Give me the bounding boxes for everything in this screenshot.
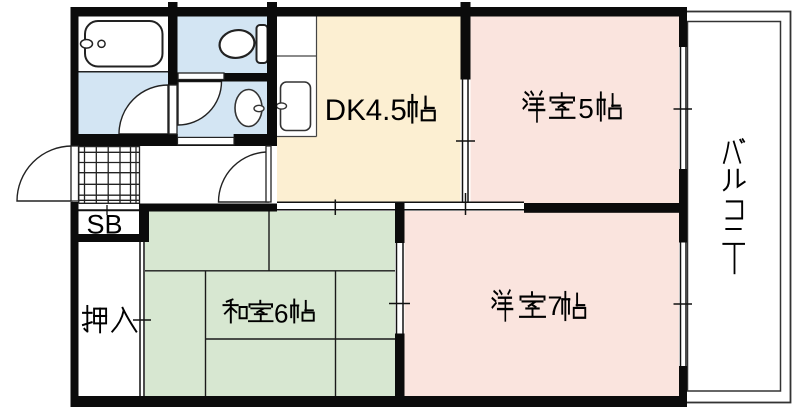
- svg-text:DK4.5: DK4.5: [325, 94, 407, 127]
- svg-text:5: 5: [578, 93, 594, 124]
- svg-text:6: 6: [274, 298, 288, 328]
- svg-text:7: 7: [548, 291, 563, 321]
- svg-text:SB: SB: [87, 210, 123, 240]
